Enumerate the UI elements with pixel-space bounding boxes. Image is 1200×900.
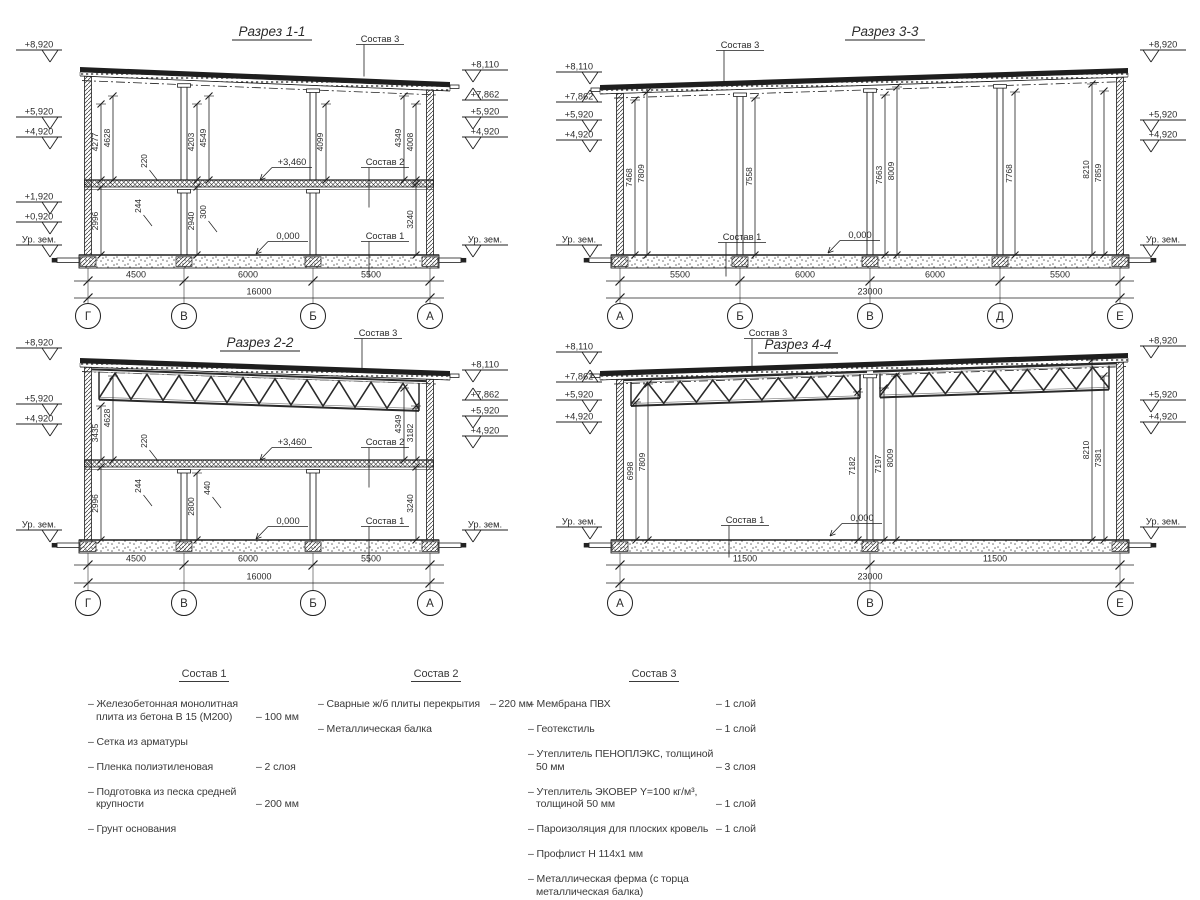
wall [617, 379, 624, 540]
leader-note: +3,460 [278, 437, 307, 447]
vertical-dimension: 4203 [186, 132, 196, 151]
column-footing [1112, 542, 1128, 552]
dimension-label: 5500 [361, 270, 381, 280]
legend-header-text: Состав 2 [411, 668, 462, 682]
ground-edge-plate [589, 258, 611, 263]
callout-label: 440 [202, 481, 212, 495]
elevation-mark-arrow [473, 137, 481, 149]
total-dimension-label: 23000 [857, 572, 882, 582]
column-capital [864, 374, 877, 378]
elevation-mark-arrow [1151, 400, 1159, 412]
elevation-mark-label: Ур. зем. [468, 235, 502, 245]
column-footing [80, 257, 96, 267]
elevation-mark-arrow [1143, 50, 1151, 62]
leader-note: Состав 2 [366, 437, 405, 447]
vertical-dimension: 2940 [186, 211, 196, 230]
eaves-hook [450, 374, 459, 378]
elevation-mark-arrow [590, 140, 598, 152]
elevation-mark-arrow [582, 72, 590, 84]
dimension-label: 6000 [238, 554, 258, 564]
callout-label: 300 [198, 205, 208, 219]
column-capital [178, 190, 191, 194]
legend-item-text: – Подготовка из песка средней крупности [88, 786, 256, 812]
legend-item-text: – Грунт основания [88, 823, 256, 836]
column-footing [176, 542, 192, 552]
legend-item-value: – 1 слой [716, 798, 780, 811]
callout-label: 220 [139, 154, 149, 168]
callout-label: 244 [133, 479, 143, 493]
elevation-mark-label: Ур. зем. [468, 520, 502, 530]
total-dimension-label: 16000 [246, 287, 271, 297]
vertical-dimension: 7809 [636, 164, 646, 183]
ground-slab [79, 255, 439, 268]
legend-header-text: Состав 1 [179, 668, 230, 682]
elevation-mark-arrow [582, 352, 590, 364]
dimension-label: 5500 [1050, 270, 1070, 280]
legend-item-value: – 3 слоя [716, 761, 780, 774]
ground-edge-cap [584, 258, 589, 262]
ground-edge-plate [589, 543, 611, 548]
column-footing [422, 542, 438, 552]
vertical-dimension: 8009 [886, 161, 896, 180]
legend-item: – Пароизоляция для плоских кровель– 1 сл… [528, 823, 780, 836]
callout-leader [209, 221, 218, 232]
elevation-mark-label: +8,920 [25, 338, 54, 348]
wall [427, 90, 434, 255]
ground-edge-cap [584, 543, 589, 547]
vertical-dimension: 3240 [405, 494, 415, 513]
column-footing [612, 542, 628, 552]
leader-note: 0,000 [848, 230, 871, 240]
legend-item: – Мембрана ПВХ– 1 слой [528, 698, 780, 711]
legend-item: – Грунт основания [88, 823, 320, 836]
leader-note: Состав 3 [721, 40, 760, 50]
legend-item-value: – 1 слой [716, 723, 780, 736]
elevation-mark-arrow [590, 527, 598, 539]
ground-edge-plate [439, 258, 461, 263]
leader-note: Состав 1 [366, 231, 405, 241]
column-footing [1112, 257, 1128, 267]
dimension-label: 4500 [126, 270, 146, 280]
elevation-mark-arrow [590, 400, 598, 412]
elevation-mark-arrow [1151, 140, 1159, 152]
legend-item-text: – Железобетонная монолитная плита из бет… [88, 698, 256, 724]
elevation-mark-arrow [42, 222, 50, 234]
column-footing [176, 257, 192, 267]
legend-item-text: – Металлическая ферма (с торца металличе… [528, 873, 716, 899]
axis-letter: Б [309, 598, 317, 610]
axis-letter: Г [85, 598, 92, 610]
elevation-mark-arrow [1143, 346, 1151, 358]
legend-item-value: – 100 мм [256, 711, 320, 724]
wall [1117, 362, 1124, 540]
vertical-dimension: 6998 [625, 461, 635, 480]
ground-edge-cap [52, 258, 57, 262]
elevation-mark-label: +8,920 [1149, 336, 1178, 346]
elevation-mark-label: +4,920 [471, 127, 500, 137]
note-arrow-leader [830, 524, 842, 537]
elevation-mark-label: +4,920 [471, 426, 500, 436]
elevation-mark-label: +4,920 [1149, 130, 1178, 140]
column-capital [994, 85, 1007, 89]
column-footing [862, 257, 878, 267]
elevation-mark-arrow [1143, 422, 1151, 434]
callout-leader [144, 215, 153, 226]
legend-item-text: – Геотекстиль [528, 723, 716, 736]
vertical-dimension: 4099 [315, 132, 325, 151]
elevation-mark-arrow [42, 530, 50, 542]
callout-leader [144, 495, 153, 506]
truss-bottom-chord [99, 400, 419, 411]
section-title: Разрез 2-2 [227, 335, 294, 350]
leader-note: Состав 3 [361, 34, 400, 44]
legend-item-text: – Пленка полиэтиленовая [88, 761, 256, 774]
legend-item-text: – Утеплитель ЭКОВЕР Y=100 кг/м³, толщино… [528, 786, 716, 812]
elevation-mark-arrow [465, 370, 473, 382]
elevation-mark-arrow [50, 245, 58, 257]
vertical-dimension: 4549 [198, 128, 208, 147]
ground-edge-cap [1151, 543, 1156, 547]
elevation-mark-label: +4,920 [565, 130, 594, 140]
elevation-mark-arrow [50, 50, 58, 62]
elevation-mark-arrow [50, 530, 58, 542]
elevation-mark-label: Ур. зем. [22, 235, 56, 245]
legend-item: – Геотекстиль– 1 слой [528, 723, 780, 736]
vertical-dimension: 7859 [1093, 163, 1103, 182]
legend-item-value: – 200 мм [256, 798, 320, 811]
column-capital [864, 89, 877, 93]
legend-column: Состав 1– Железобетонная монолитная плит… [88, 668, 320, 848]
floor-slab [85, 180, 434, 187]
legend-item: – Железобетонная монолитная плита из бет… [88, 698, 320, 724]
legend-item-text: – Утеплитель ПЕНОПЛЭКС, толщиной 50 мм [528, 748, 716, 774]
elevation-mark-arrow [1143, 527, 1151, 539]
elevation-mark-arrow [473, 436, 481, 448]
elevation-mark-arrow [50, 424, 58, 436]
axis-letter: А [616, 598, 624, 610]
elevation-mark-label: +4,920 [1149, 412, 1178, 422]
legend-item-text: – Мембрана ПВХ [528, 698, 716, 711]
axis-letter: А [426, 598, 434, 610]
dimension-label: 11500 [983, 554, 1007, 564]
vertical-dimension: 2996 [90, 211, 100, 230]
legend-item: – Пленка полиэтиленовая– 2 слоя [88, 761, 320, 774]
dimension-label: 6000 [238, 270, 258, 280]
column-footing [992, 257, 1008, 267]
elevation-mark-label: +8,110 [565, 62, 593, 72]
dimension-label: 5500 [670, 270, 690, 280]
elevation-mark-arrow [590, 72, 598, 84]
elevation-mark-arrow [1151, 346, 1159, 358]
section-title: Разрез 1-1 [239, 24, 306, 39]
elevation-mark-arrow [1151, 527, 1159, 539]
column-footing [80, 542, 96, 552]
legend-item: – Металлическая ферма (с торца металличе… [528, 873, 780, 899]
vertical-dimension: 7768 [1004, 164, 1014, 183]
legend-item: – Сетка из арматуры [88, 736, 320, 749]
ground-edge-cap [461, 258, 466, 262]
elevation-mark-arrow [1151, 50, 1159, 62]
elevation-mark-arrow [50, 222, 58, 234]
leader-note: Состав 1 [723, 232, 762, 242]
legend-item-text: – Металлическая балка [318, 723, 490, 736]
legend-item-text: – Профлист Н 114х1 мм [528, 848, 716, 861]
leader-note: Состав 1 [726, 515, 765, 525]
elevation-mark-label: +7,862 [565, 372, 594, 382]
elevation-mark-label: +4,920 [25, 127, 54, 137]
elevation-mark-arrow [1151, 422, 1159, 434]
elevation-mark-arrow [473, 370, 481, 382]
callout-label: 220 [139, 434, 149, 448]
legend-header: Состав 1 [88, 668, 320, 681]
vertical-dimension: 3435 [90, 423, 100, 442]
legend-column: Состав 3– Мембрана ПВХ– 1 слой– Геотекст… [528, 668, 780, 900]
elevation-mark-label: +8,920 [25, 40, 54, 50]
vertical-dimension: 7809 [637, 452, 647, 471]
elevation-mark-arrow [42, 137, 50, 149]
vertical-dimension: 7197 [873, 454, 883, 473]
vertical-dimension: 2996 [90, 494, 100, 513]
section-4-4-drawing: +8,110+7,862+5,920+4,920Ур. зем.+8,920+5… [540, 318, 1200, 648]
note-arrow-leader [260, 448, 272, 461]
elevation-mark-label: Ур. зем. [562, 235, 596, 245]
axis-letter: Е [1116, 598, 1124, 610]
ground-edge-plate [57, 258, 79, 263]
note-arrow-leader [256, 242, 268, 255]
column-capital [307, 89, 320, 93]
section-title: Разрез 3-3 [852, 24, 919, 39]
ground-edge-cap [1151, 258, 1156, 262]
elevation-mark-arrow [582, 527, 590, 539]
legend: Состав 1– Железобетонная монолитная плит… [0, 668, 1200, 898]
vertical-dimension: 2800 [186, 497, 196, 516]
elevation-mark-arrow [50, 137, 58, 149]
elevation-mark-label: +4,920 [25, 414, 54, 424]
legend-header: Состав 2 [318, 668, 554, 681]
elevation-mark-arrow [582, 140, 590, 152]
elevation-mark-label: Ур. зем. [1146, 517, 1180, 527]
elevation-mark-label: +8,920 [1149, 40, 1178, 50]
elevation-mark-arrow [473, 530, 481, 542]
legend-item: – Утеплитель ПЕНОПЛЭКС, толщиной 50 мм– … [528, 748, 780, 774]
total-dimension-label: 23000 [857, 287, 882, 297]
elevation-mark-label: +8,110 [565, 342, 593, 352]
legend-header: Состав 3 [528, 668, 780, 681]
leader-note: +3,460 [278, 157, 307, 167]
elevation-mark-arrow [42, 424, 50, 436]
elevation-mark-label: +5,920 [1149, 110, 1178, 120]
column-capital [307, 470, 320, 474]
vertical-dimension: 7663 [874, 165, 884, 184]
elevation-mark-arrow [582, 245, 590, 257]
elevation-mark-arrow [42, 348, 50, 360]
legend-item: – Подготовка из песка средней крупности–… [88, 786, 320, 812]
vertical-dimension: 4008 [405, 132, 415, 151]
drawing-sheet: +8,920+5,920+4,920+1,920+0,920Ур. зем.+8… [0, 0, 1200, 900]
elevation-mark-arrow [465, 245, 473, 257]
leader-note: 0,000 [276, 231, 299, 241]
vertical-dimension: 7182 [847, 456, 857, 475]
legend-item: – Профлист Н 114х1 мм [528, 848, 780, 861]
column-footing [732, 257, 748, 267]
leader-note: 0,000 [850, 513, 873, 523]
vertical-dimension: 8210 [1081, 440, 1091, 459]
column-capital [734, 93, 747, 97]
elevation-mark-arrow [1143, 140, 1151, 152]
elevation-mark-arrow [590, 245, 598, 257]
section-1-1-drawing: +8,920+5,920+4,920+1,920+0,920Ур. зем.+8… [0, 0, 540, 340]
column-footing [612, 257, 628, 267]
vertical-dimension: 4277 [90, 132, 100, 151]
ground-edge-plate [1129, 258, 1151, 263]
ground-edge-cap [52, 543, 57, 547]
section-3-3-drawing: +8,110+7,862+5,920+4,920Ур. зем.+8,920+5… [540, 0, 1200, 340]
elevation-mark-arrow [1143, 400, 1151, 412]
vertical-dimension: 8210 [1081, 160, 1091, 179]
column-capital [178, 470, 191, 474]
elevation-mark-label: +5,920 [25, 394, 54, 404]
dimension-label: 4500 [126, 554, 146, 564]
floor-slab [85, 460, 434, 467]
note-arrow-leader [260, 168, 272, 181]
elevation-mark-arrow [42, 50, 50, 62]
elevation-mark-label: Ур. зем. [562, 517, 596, 527]
elevation-mark-arrow [582, 422, 590, 434]
column-footing [305, 257, 321, 267]
leader-note: Состав 3 [359, 328, 398, 338]
column-capital [178, 84, 191, 88]
vertical-dimension: 3240 [405, 210, 415, 229]
leader-note: Состав 1 [366, 516, 405, 526]
elevation-mark-arrow [473, 70, 481, 82]
callout-label: 244 [133, 199, 143, 213]
elevation-mark-arrow [465, 137, 473, 149]
wall [1117, 77, 1124, 255]
legend-item: – Утеплитель ЭКОВЕР Y=100 кг/м³, толщино… [528, 786, 780, 812]
dimension-label: 6000 [795, 270, 815, 280]
axis-letter: В [180, 598, 188, 610]
column-capital [307, 190, 320, 194]
elevation-mark-label: +7,862 [565, 92, 594, 102]
elevation-mark-label: +8,110 [471, 60, 499, 70]
elevation-mark-arrow [50, 348, 58, 360]
legend-column: Состав 2– Сварные ж/б плиты перекрытия– … [318, 668, 554, 748]
elevation-mark-label: +4,920 [565, 412, 594, 422]
ground-edge-plate [57, 543, 79, 548]
wall [85, 367, 92, 540]
note-arrow-leader [256, 527, 268, 540]
elevation-mark-label: +5,920 [471, 406, 500, 416]
elevation-mark-label: Ур. зем. [22, 520, 56, 530]
elevation-mark-label: +5,920 [471, 107, 500, 117]
elevation-mark-label: +5,920 [25, 107, 54, 117]
elevation-mark-label: +5,920 [565, 110, 594, 120]
wall [617, 93, 624, 255]
ground-edge-cap [461, 543, 466, 547]
elevation-mark-label: +5,920 [565, 390, 594, 400]
elevation-mark-arrow [590, 352, 598, 364]
elevation-mark-label: Ур. зем. [1146, 235, 1180, 245]
callout-leader [150, 170, 159, 181]
vertical-dimension: 4349 [393, 414, 403, 433]
column-footing [422, 257, 438, 267]
vertical-dimension: 4628 [102, 408, 112, 427]
dimension-label: 5500 [361, 554, 381, 564]
legend-item: – Сварные ж/б плиты перекрытия– 220 мм [318, 698, 554, 711]
dimension-label: 11500 [733, 554, 757, 564]
ground-edge-plate [1129, 543, 1151, 548]
column-footing [862, 542, 878, 552]
elevation-mark-label: +1,920 [25, 192, 54, 202]
section-title: Разрез 4-4 [765, 337, 832, 352]
legend-item-value: – 2 слоя [256, 761, 320, 774]
axis-letter: В [866, 598, 874, 610]
callout-leader [150, 450, 159, 461]
elevation-mark-arrow [465, 530, 473, 542]
legend-header-text: Состав 3 [629, 668, 680, 682]
elevation-mark-label: +0,920 [25, 212, 54, 222]
vertical-dimension: 7558 [744, 167, 754, 186]
elevation-mark-label: +8,110 [471, 360, 499, 370]
vertical-dimension: 7381 [1093, 448, 1103, 467]
vertical-dimension: 4628 [102, 128, 112, 147]
ground-edge-plate [439, 543, 461, 548]
elevation-mark-arrow [590, 422, 598, 434]
elevation-mark-arrow [42, 245, 50, 257]
column-footing [305, 542, 321, 552]
vertical-dimension: 8009 [885, 448, 895, 467]
vertical-dimension: 4349 [393, 128, 403, 147]
elevation-mark-arrow [473, 245, 481, 257]
eaves-hook [450, 85, 459, 89]
vertical-dimension: 3182 [405, 423, 415, 442]
leader-note: 0,000 [276, 516, 299, 526]
legend-item-value: – 1 слой [716, 698, 780, 711]
elevation-mark-arrow [465, 70, 473, 82]
elevation-mark-arrow [1143, 245, 1151, 257]
elevation-mark-label: +5,920 [1149, 390, 1178, 400]
elevation-mark-arrow [582, 400, 590, 412]
total-dimension-label: 16000 [246, 572, 271, 582]
elevation-mark-arrow [1151, 245, 1159, 257]
section-2-2-drawing: +8,920+5,920+4,920Ур. зем.+8,110+7,862+5… [0, 318, 540, 648]
legend-item-value: – 1 слой [716, 823, 780, 836]
legend-item-text: – Сетка из арматуры [88, 736, 256, 749]
leader-note: Состав 2 [366, 157, 405, 167]
elevation-mark-arrow [465, 436, 473, 448]
legend-item-text: – Пароизоляция для плоских кровель [528, 823, 716, 836]
callout-leader [213, 497, 222, 508]
ground-slab [79, 540, 439, 553]
dimension-label: 6000 [925, 270, 945, 280]
vertical-dimension: 7468 [624, 168, 634, 187]
legend-item-text: – Сварные ж/б плиты перекрытия [318, 698, 490, 711]
legend-item: – Металлическая балка [318, 723, 554, 736]
note-arrow-leader [828, 241, 840, 254]
